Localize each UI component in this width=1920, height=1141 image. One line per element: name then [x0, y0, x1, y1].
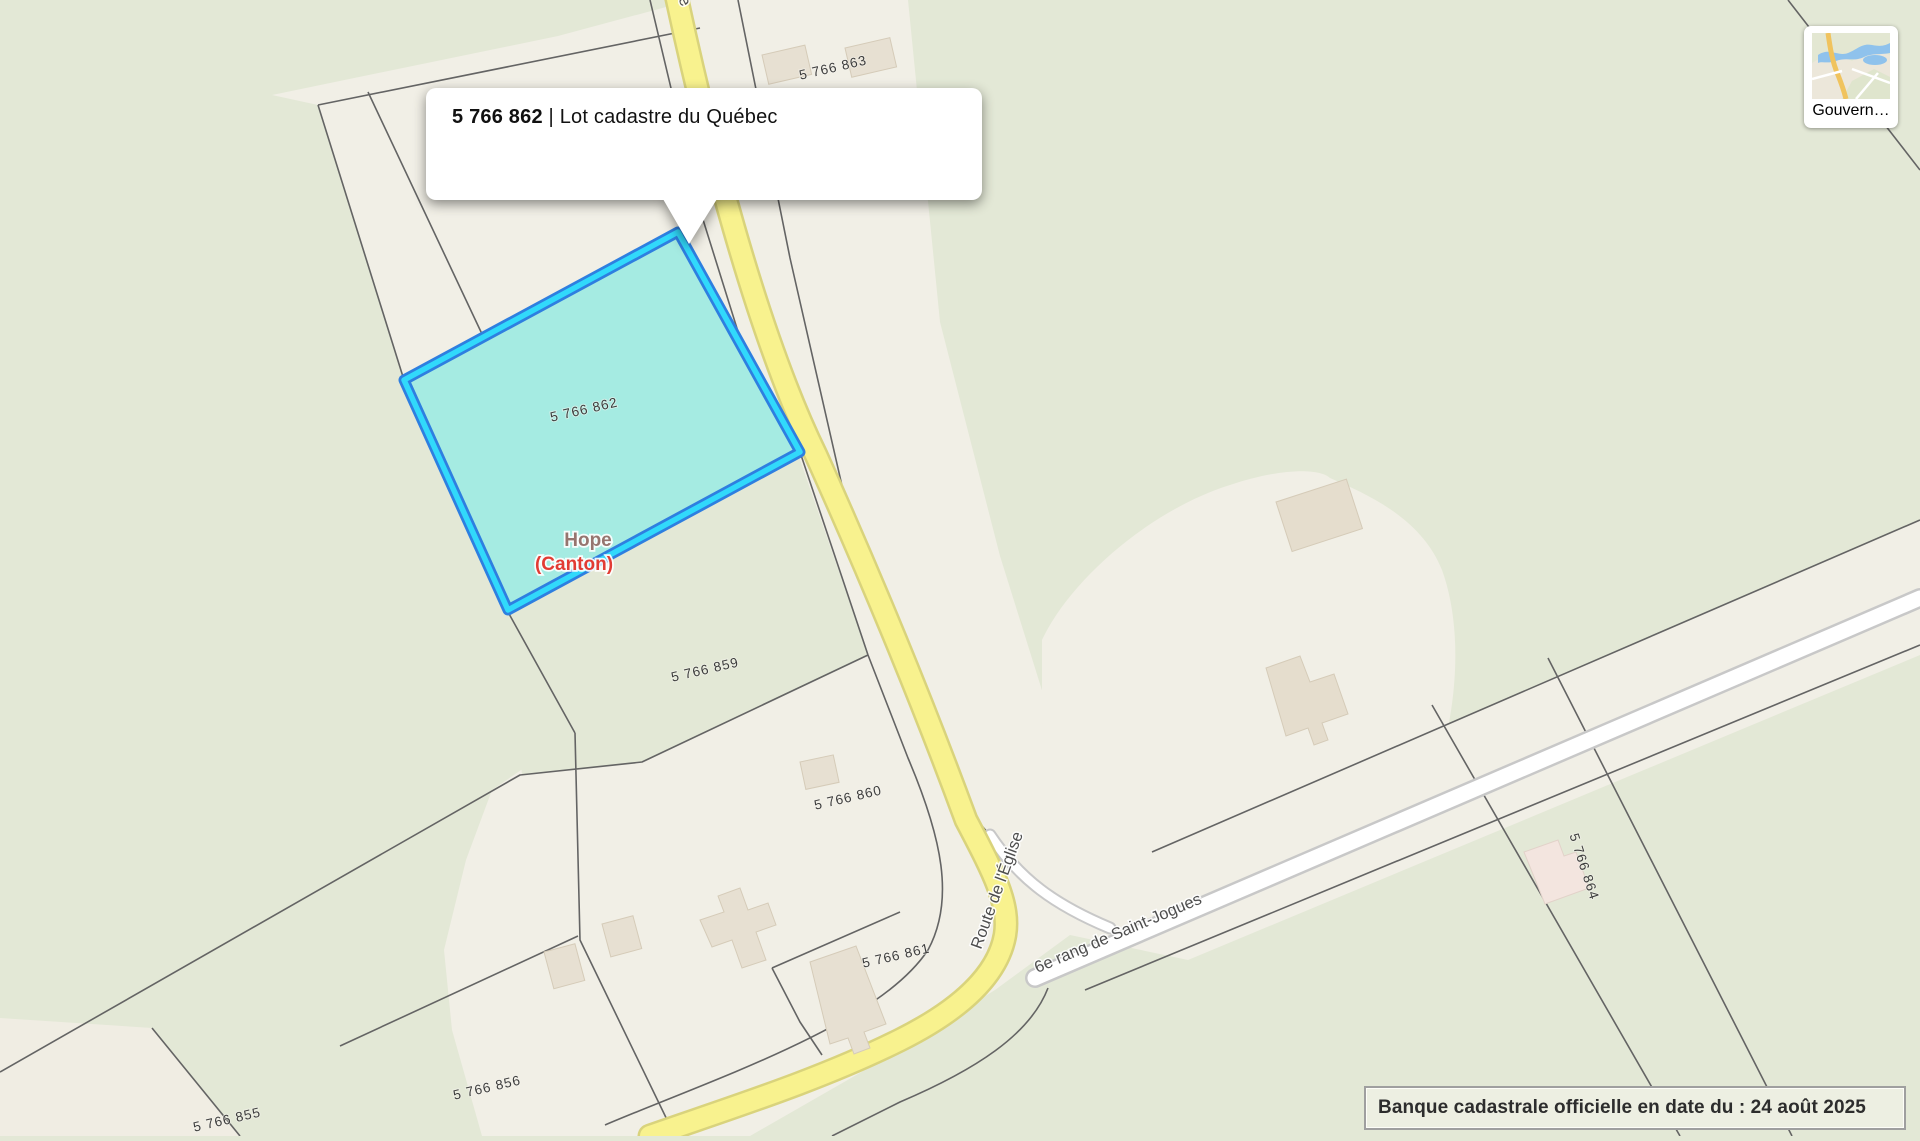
basemap-thumbnail-label: Gouvern… [1804, 102, 1898, 120]
popup-lot-number: 5 766 862 [452, 106, 543, 128]
basemap-thumbnail-button[interactable]: Gouvern… [1804, 26, 1898, 128]
popup-description: Lot cadastre du Québec [560, 106, 778, 128]
lot-info-popup: 5 766 862 | Lot cadastre du Québec [426, 88, 982, 200]
basemap-thumbnail-image [1812, 33, 1890, 99]
cadastre-date-text: Banque cadastrale officielle en date du … [1366, 1097, 1866, 1119]
map-viewport[interactable]: 5 766 863 5 766 862 5 766 859 5 766 860 … [0, 0, 1920, 1136]
popup-separator: | [549, 106, 554, 128]
lot-info-popup-title: 5 766 862 | Lot cadastre du Québec [452, 106, 778, 129]
place-label-canton: (Canton) [535, 554, 613, 575]
place-label-hope: Hope [564, 530, 612, 551]
cadastre-date-badge: Banque cadastrale officielle en date du … [1364, 1086, 1906, 1130]
lot-info-popup-body: 5 766 862 | Lot cadastre du Québec [426, 88, 982, 200]
popup-tail-pointer [663, 199, 717, 244]
